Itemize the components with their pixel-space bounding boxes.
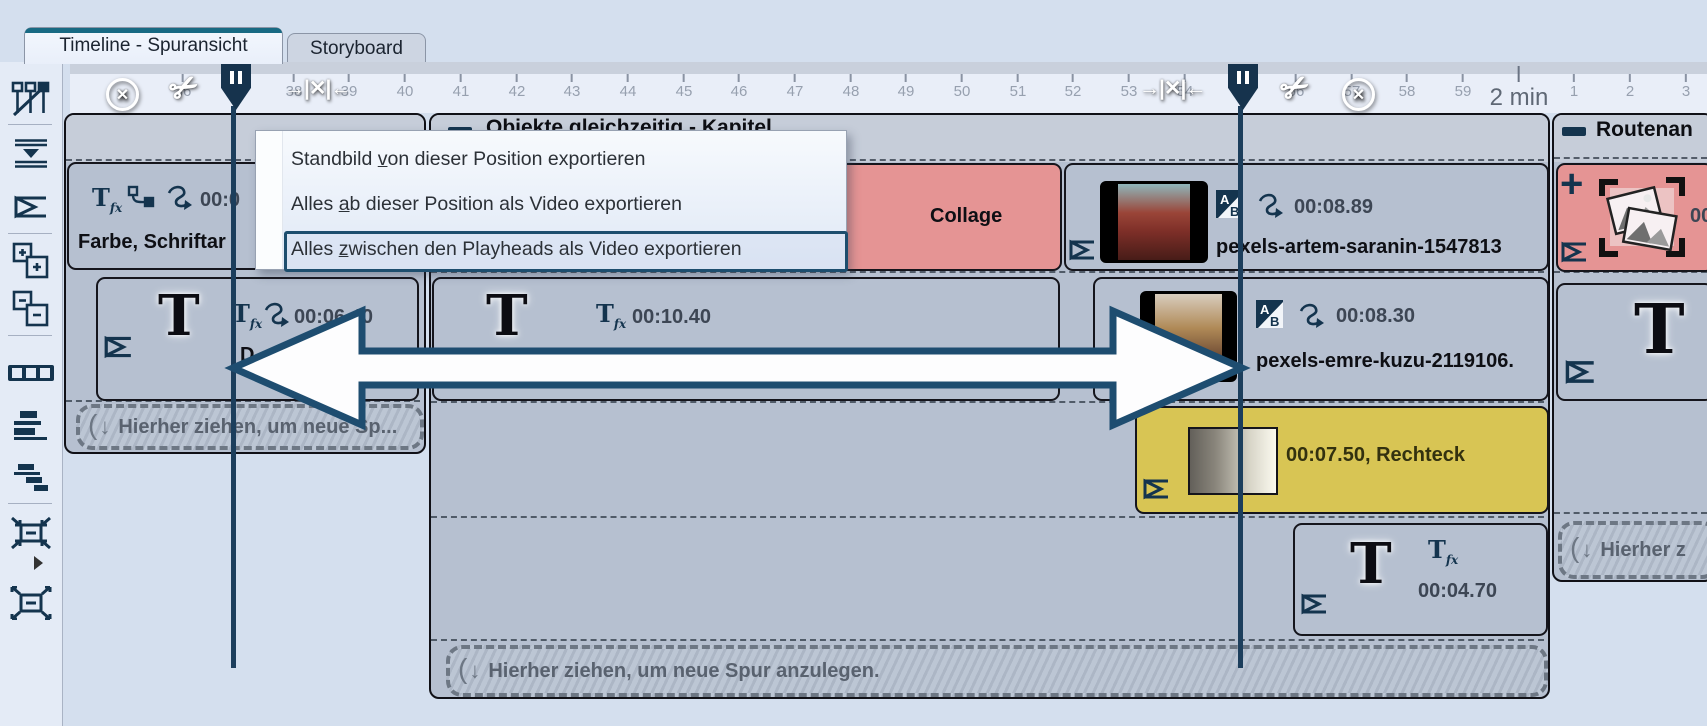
gradient-thumbnail: [1188, 427, 1278, 495]
tab-storyboard[interactable]: Storyboard: [287, 33, 426, 64]
ruler-tick: 52: [1065, 74, 1082, 100]
track-separator: [431, 401, 1544, 403]
ruler-tick: 53: [1121, 74, 1138, 100]
clip-duration: 00:04.70: [1418, 580, 1497, 603]
photos-icon: [1598, 176, 1686, 258]
ruler-tick: 58: [1399, 74, 1416, 100]
curve-icon: [260, 301, 290, 329]
clip-thumbnail-street: [1140, 291, 1237, 382]
track-size-large-icon: [13, 410, 49, 440]
clip-title-partial: D: [240, 344, 254, 367]
clip-duration: 00:10.40: [632, 306, 711, 329]
x-glyph: ✕: [116, 85, 129, 105]
curve-icon: [1254, 192, 1284, 220]
zoom-in-icon: [12, 242, 50, 280]
zoom-out-icon: [12, 290, 50, 328]
text-fx-icon: Tfx: [232, 302, 262, 330]
track-size-small-icon: [13, 463, 49, 491]
track-separator: [431, 516, 1544, 518]
dropzone-new-track-left[interactable]: ( ↓ Hierher ziehen, um neue Sp...: [76, 404, 424, 450]
menu-item-export-from-position[interactable]: Alles ab dieser Position als Video expor…: [291, 193, 682, 216]
playhead-line-end[interactable]: [1238, 106, 1243, 668]
range-play-icon: [1564, 358, 1596, 386]
add-object-icon[interactable]: +: [1560, 162, 1583, 207]
collapse-chapter-icon[interactable]: [1562, 127, 1586, 136]
svg-text:A: A: [1220, 192, 1230, 207]
down-arrow-icon: ↓: [469, 658, 480, 684]
track-separator: [1554, 157, 1707, 159]
ab-transition-icon: A B: [1256, 300, 1283, 328]
insert-mode-icon: [14, 138, 48, 169]
expand-view-button[interactable]: [8, 582, 54, 624]
ruler-tick: 2 min: [1490, 66, 1549, 112]
toolbar-divider: [8, 335, 52, 336]
ruler-tick: 46: [731, 74, 748, 100]
filmstrip-view-button[interactable]: [8, 352, 54, 394]
ruler-tick: 1: [1570, 74, 1578, 100]
text-fx-icon: Tfx: [596, 302, 626, 330]
track-size-small-button[interactable]: [8, 456, 54, 498]
menu-item-export-between-playheads[interactable]: Alles zwischen den Playheads als Video e…: [291, 238, 742, 261]
track-size-large-button[interactable]: [8, 404, 54, 446]
range-playback-button[interactable]: [8, 186, 54, 228]
svg-text:A: A: [1260, 302, 1270, 317]
track-separator: [1554, 512, 1707, 514]
ruler-tick: 44: [620, 74, 637, 100]
curve-icon: [163, 184, 193, 212]
title-object-glyph: T: [1350, 536, 1392, 592]
track-separator: [431, 639, 1544, 641]
video-editor-timeline: Timeline - Spuransicht Storyboard: [0, 0, 1707, 726]
range-play-icon: [13, 194, 49, 220]
ruler-tick: 42: [509, 74, 526, 100]
text-fx-icon: Tfx: [92, 186, 122, 214]
ruler-tick: 49: [898, 74, 915, 100]
dropzone-label: Hierher ziehen, um neue Spur anzulegen.: [488, 660, 879, 683]
range-play-icon: [1300, 592, 1328, 616]
title-object-glyph: T: [486, 288, 528, 344]
ruler-tick: 48: [843, 74, 860, 100]
dropzone-new-track-middle[interactable]: ( ↓ Hierher ziehen, um neue Spur anzuleg…: [446, 645, 1548, 697]
text-fx-icon: Tfx: [1428, 538, 1458, 566]
zoom-in-objects-button[interactable]: [8, 240, 54, 282]
down-arrow-icon: ↓: [99, 414, 110, 440]
curve-icon: [1295, 302, 1325, 330]
ruler-tick: 41: [453, 74, 470, 100]
paren-glyph: (: [88, 409, 97, 441]
dropzone-new-track-right[interactable]: ( ↓ Hierher z: [1558, 521, 1707, 579]
ruler-tick: 40: [397, 74, 414, 100]
clip-thumbnail-forest: [1100, 181, 1208, 263]
ruler-tick: 45: [676, 74, 693, 100]
delete-range-icon[interactable]: ✕: [106, 78, 139, 111]
ruler-tick: 50: [954, 74, 971, 100]
ruler-tick: 59: [1455, 74, 1472, 100]
close-gap-icon-right[interactable]: →|✕|←: [1139, 76, 1205, 101]
gap-glyph: →|✕|←: [284, 77, 350, 100]
keyframe-animation-icon: [127, 184, 157, 212]
shrink-view-icon: [10, 516, 52, 550]
title-object-glyph: T: [158, 288, 200, 344]
gap-glyph: →|✕|←: [1139, 77, 1205, 100]
clip-duration: 00:06.40: [294, 306, 373, 329]
dropzone-label: Hierher z: [1600, 539, 1686, 562]
ruler-tick: 3: [1682, 74, 1690, 100]
clip-title: Farbe, Schriftar: [78, 231, 226, 254]
flyout-arrow-icon[interactable]: [34, 556, 43, 570]
clip-text-left[interactable]: [96, 277, 419, 401]
menu-item-export-still[interactable]: Standbild von dieser Position exportiere…: [291, 148, 645, 171]
range-play-icon: [1560, 240, 1588, 264]
insert-mode-button[interactable]: [8, 132, 54, 174]
expand-view-icon: [10, 586, 52, 620]
range-play-icon: [103, 334, 133, 360]
clip-filename: pexels-artem-saranin-1547813: [1216, 236, 1502, 259]
paren-glyph: (: [458, 653, 467, 685]
tab-timeline-spuransicht[interactable]: Timeline - Spuransicht: [24, 27, 283, 64]
clip-title: Collage: [930, 205, 1002, 228]
clip-duration: 00:08.89: [1294, 196, 1373, 219]
ruler-ticks: 3637383940414243444546474849505152535455…: [0, 70, 1707, 114]
clip-label: 00:07.50, Rechteck: [1286, 444, 1465, 467]
active-tab-accent: [25, 28, 282, 33]
clip-duration: 00: [1690, 205, 1707, 228]
shrink-view-button[interactable]: [8, 512, 54, 554]
chapter-title: Routenan: [1596, 118, 1693, 142]
ruler-tick: 2: [1626, 74, 1634, 100]
clip-duration: 00:08.30: [1336, 305, 1415, 328]
x-glyph: ✕: [1352, 85, 1365, 105]
range-play-icon: [1142, 477, 1170, 501]
export-context-menu: Standbild von dieser Position exportiere…: [255, 130, 847, 270]
toolbar-divider: [8, 503, 52, 504]
ruler-tick: 43: [564, 74, 581, 100]
delete-range-icon-right[interactable]: ✕: [1342, 78, 1375, 111]
filmstrip-icon: [8, 365, 54, 381]
ruler-tick: 47: [787, 74, 804, 100]
playhead-line-start[interactable]: [231, 106, 236, 668]
zoom-out-objects-button[interactable]: [8, 288, 54, 330]
toolbar-divider: [8, 233, 52, 234]
tab-label: Storyboard: [310, 38, 403, 60]
down-arrow-icon: ↓: [1581, 537, 1592, 563]
title-object-glyph: T: [1634, 296, 1685, 364]
svg-text:B: B: [1270, 314, 1279, 328]
clip-filename: pexels-emre-kuzu-2119106.: [1256, 350, 1514, 373]
tab-label: Timeline - Spuransicht: [59, 35, 247, 57]
ruler-tick: 51: [1010, 74, 1027, 100]
close-gap-icon-left[interactable]: →|✕|←: [284, 76, 350, 101]
range-play-icon: [1068, 238, 1096, 262]
menu-icon-gutter: [256, 131, 283, 269]
toolbar-divider: [8, 124, 52, 125]
dropzone-label: Hierher ziehen, um neue Sp...: [118, 416, 397, 439]
paren-glyph: (: [1570, 532, 1579, 564]
